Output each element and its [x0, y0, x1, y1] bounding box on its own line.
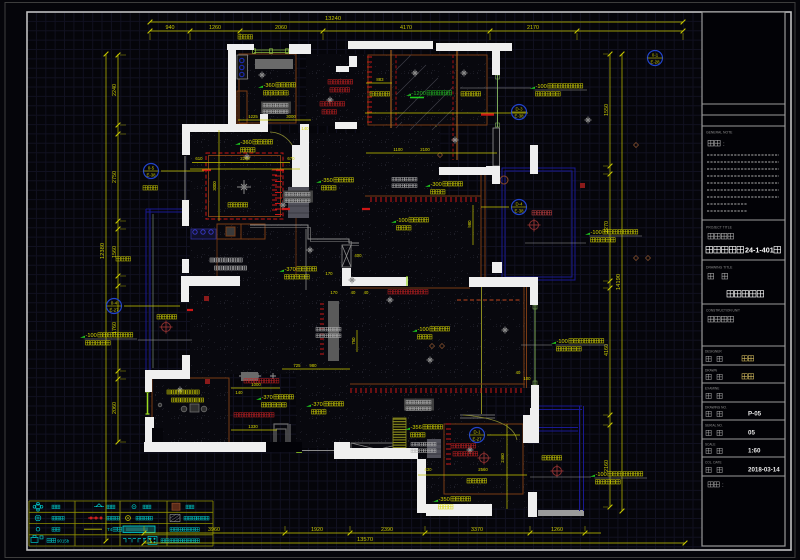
svg-text:1920: 1920 — [311, 527, 323, 533]
svg-text:1260: 1260 — [209, 25, 221, 31]
svg-text:-100: -100 — [86, 333, 97, 339]
svg-text:610: 610 — [195, 156, 203, 161]
svg-text:COL. DATE: COL. DATE — [705, 461, 722, 465]
svg-text:D-4: D-4 — [516, 202, 524, 207]
svg-text:E-38: E-38 — [514, 114, 524, 119]
svg-text:2240: 2240 — [112, 84, 118, 96]
svg-text:-300: -300 — [431, 182, 442, 188]
svg-text:725: 725 — [293, 363, 301, 368]
svg-text:E-38: E-38 — [514, 209, 524, 214]
svg-text:40: 40 — [364, 290, 369, 295]
svg-text:2160: 2160 — [604, 460, 610, 472]
svg-text:1:60: 1:60 — [748, 448, 761, 455]
svg-text:-370: -370 — [312, 402, 323, 408]
svg-text:-100: -100 — [397, 218, 408, 224]
svg-text:980: 980 — [309, 363, 317, 368]
svg-text:1760: 1760 — [112, 322, 118, 334]
svg-text:1560: 1560 — [112, 246, 118, 258]
svg-text:CONSTRUCTION UNIT: CONSTRUCTION UNIT — [706, 309, 740, 313]
svg-text:980: 980 — [467, 220, 472, 228]
svg-text:2100: 2100 — [420, 147, 430, 152]
svg-text:DRAWING TITLE: DRAWING TITLE — [706, 266, 733, 270]
svg-text:9015b: 9015b — [57, 538, 70, 543]
svg-text:P-05: P-05 — [748, 411, 762, 418]
svg-text:670: 670 — [287, 156, 295, 161]
svg-text:SERIAL NO.: SERIAL NO. — [705, 424, 723, 428]
svg-text:EXAMINE: EXAMINE — [705, 387, 719, 391]
svg-text:-356: -356 — [411, 425, 422, 431]
svg-text:0-1: 0-1 — [652, 53, 659, 58]
svg-text:4170: 4170 — [400, 25, 412, 31]
svg-text:D-1: D-1 — [474, 430, 482, 435]
svg-text:-100: -100 — [591, 230, 602, 236]
svg-text:PROJECT TITLE: PROJECT TITLE — [706, 226, 733, 230]
svg-text:D-3: D-3 — [516, 107, 524, 112]
svg-text:E-38: E-38 — [146, 173, 156, 178]
svg-text:-100: -100 — [536, 84, 547, 90]
svg-text:2460: 2460 — [500, 453, 505, 463]
svg-text:12380: 12380 — [100, 243, 106, 259]
svg-text:2390: 2390 — [381, 527, 393, 533]
svg-text:2018-03-14: 2018-03-14 — [748, 467, 780, 474]
svg-text:4160: 4160 — [604, 344, 610, 356]
svg-text:1000: 1000 — [251, 382, 261, 387]
svg-text:DESIGNER: DESIGNER — [705, 350, 722, 354]
svg-text:3370: 3370 — [471, 527, 483, 533]
svg-text:-360: -360 — [241, 140, 252, 146]
svg-text:-100: -100 — [596, 472, 607, 478]
svg-text:E-28: E-28 — [650, 60, 660, 65]
svg-text:-370: -370 — [262, 395, 273, 401]
svg-text:883: 883 — [376, 77, 384, 82]
svg-text:140: 140 — [235, 390, 243, 395]
svg-text:05: 05 — [748, 430, 755, 437]
svg-text:40: 40 — [516, 370, 521, 375]
svg-text:170: 170 — [330, 290, 338, 295]
svg-text:100: 100 — [523, 376, 531, 381]
svg-text:24-1-401: 24-1-401 — [745, 246, 774, 255]
svg-text:-350: -350 — [439, 497, 450, 503]
svg-text:-1200: -1200 — [412, 91, 426, 97]
svg-text:13240: 13240 — [325, 16, 341, 22]
svg-text:40: 40 — [351, 290, 356, 295]
svg-text:2560: 2560 — [478, 467, 488, 472]
svg-text:GENERAL NOTE: GENERAL NOTE — [706, 131, 733, 135]
svg-text:E-27: E-27 — [472, 437, 482, 442]
svg-text:T4: T4 — [107, 527, 113, 532]
svg-text:14190: 14190 — [616, 274, 622, 290]
svg-text:E-27: E-27 — [109, 308, 119, 313]
svg-text:0-5: 0-5 — [148, 166, 155, 171]
svg-text:400: 400 — [354, 253, 362, 258]
svg-text:DRAWN: DRAWN — [705, 369, 718, 373]
svg-text:1225: 1225 — [248, 114, 258, 119]
svg-text:1550: 1550 — [604, 104, 610, 116]
svg-text:3960: 3960 — [208, 527, 220, 533]
svg-text:-100: -100 — [418, 327, 429, 333]
svg-text:-370: -370 — [285, 267, 296, 273]
svg-text:750: 750 — [351, 337, 356, 345]
svg-text:2290: 2290 — [240, 156, 250, 161]
svg-text:2060: 2060 — [275, 25, 287, 31]
svg-text:2750: 2750 — [112, 171, 118, 183]
svg-text:2170: 2170 — [527, 25, 539, 31]
svg-text:430: 430 — [424, 467, 432, 472]
svg-text:940: 940 — [166, 25, 175, 31]
svg-text:3000: 3000 — [286, 114, 296, 119]
svg-text:-350: -350 — [322, 178, 333, 184]
svg-text:-360: -360 — [264, 83, 275, 89]
svg-text:170: 170 — [325, 271, 333, 276]
svg-text:3000: 3000 — [212, 181, 217, 191]
svg-text:1100: 1100 — [393, 147, 403, 152]
svg-text:SCALE: SCALE — [705, 443, 715, 447]
svg-text:1330: 1330 — [248, 424, 258, 429]
svg-text:1260: 1260 — [551, 527, 563, 533]
svg-text:-100: -100 — [557, 339, 568, 345]
svg-text:DRAWING NO.: DRAWING NO. — [705, 406, 727, 410]
svg-text:2060: 2060 — [112, 402, 118, 414]
svg-text:13570: 13570 — [357, 537, 373, 543]
svg-text:140: 140 — [301, 126, 309, 131]
svg-text:0-4: 0-4 — [111, 301, 118, 306]
